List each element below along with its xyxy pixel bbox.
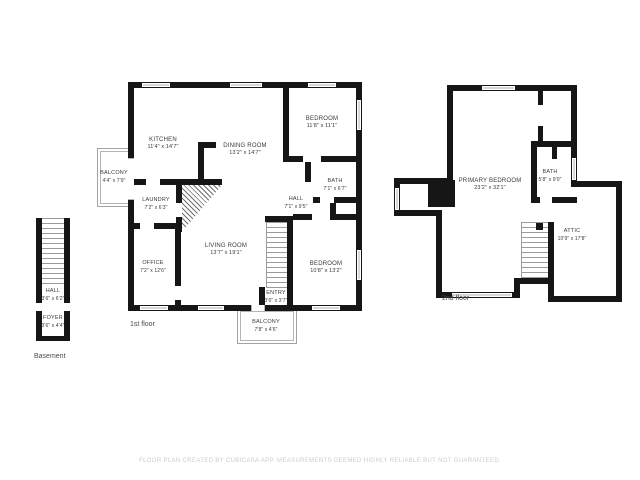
room-name: BATH (539, 169, 562, 177)
room-dims: 7'1" x 6'7" (324, 186, 347, 193)
room-dims: 13'7" x 19'1" (205, 250, 247, 258)
room-dims: 3'6" x 3'7" (265, 298, 288, 305)
room-dims: 7'2" x 6'3" (142, 205, 170, 212)
room-name: BATH (324, 178, 347, 186)
window-marker (395, 188, 399, 210)
window-marker (572, 158, 576, 180)
room-dims: 10'9" x 17'8" (558, 236, 587, 243)
wall (548, 296, 622, 302)
door-opening (540, 197, 552, 203)
room-label-bath-second: BATH 5'8" x 9'0" (539, 169, 562, 184)
room-name: LAUNDRY (142, 197, 170, 205)
room-label-balcony-bottom: BALCONY 7'8" x 4'6" (252, 319, 280, 334)
floor-label-first: 1st floor (130, 321, 155, 328)
room-name: ATTIC (558, 228, 587, 236)
room-label-bath-first: BATH 7'1" x 6'7" (324, 178, 347, 193)
wall (548, 222, 554, 302)
room-label-primary-bedroom: PRIMARY BEDROOM 23'2" x 32'1" (459, 177, 522, 193)
room-name: BALCONY (100, 170, 128, 178)
room-label-dining-room: DINING ROOM 13'2" x 14'7" (223, 142, 267, 158)
wall (447, 85, 453, 184)
room-dims: 4'4" x 7'9" (100, 178, 128, 185)
room-dims: 5'8" x 9'0" (539, 177, 562, 184)
wall (552, 147, 557, 159)
room-label-hall-first: HALL 7'1" x 9'5" (285, 196, 308, 211)
room-label-office: OFFICE 7'2" x 12'6" (140, 260, 166, 275)
room-label-bedroom-top: BEDROOM 11'8" x 11'1" (306, 115, 338, 131)
chimney (428, 180, 455, 207)
room-name: PRIMARY BEDROOM (459, 177, 522, 185)
room-dims: 11'4" x 14'7" (147, 144, 178, 152)
room-dims: 7'2" x 12'6" (140, 268, 166, 275)
room-name: KITCHEN (147, 136, 178, 144)
wall (571, 181, 622, 187)
room-dims: 3'6" x 6'2" (42, 296, 65, 303)
room-name: HALL (285, 196, 308, 204)
room-dims: 7'8" x 4'6" (252, 327, 280, 334)
room-name: BALCONY (252, 319, 280, 327)
disclaimer-text: FLOOR PLAN CREATED BY CUBICASA APP. MEAS… (0, 458, 640, 464)
wall (616, 184, 622, 302)
stair-landing-marker (536, 223, 543, 230)
wall (538, 91, 543, 105)
second-floor-staircase (521, 222, 550, 279)
room-label-basement-foyer: FOYER 3'6" x 4'4" (42, 315, 65, 330)
room-name: ENTRY (265, 290, 288, 298)
room-label-bedroom-bottom: BEDROOM 10'8" x 13'2" (310, 260, 342, 276)
room-dims: 10'8" x 13'2" (310, 268, 342, 276)
room-label-balcony-left: BALCONY 4'4" x 7'9" (100, 170, 128, 185)
wall (531, 197, 577, 203)
wall (394, 178, 453, 184)
room-label-living-room: LIVING ROOM 13'7" x 19'1" (205, 242, 247, 258)
floor-label-second: 2nd floor (442, 295, 469, 302)
room-name: BEDROOM (310, 260, 342, 268)
floor-label-basement: Basement (34, 353, 66, 360)
room-label-entry: ENTRY 3'6" x 3'7" (265, 290, 288, 305)
wall (531, 141, 537, 203)
window-marker (482, 86, 515, 90)
room-name: LIVING ROOM (205, 242, 247, 250)
room-name: OFFICE (140, 260, 166, 268)
wall (394, 210, 442, 216)
room-dims: 7'1" x 9'5" (285, 204, 308, 211)
room-label-basement-hall: HALL 3'6" x 6'2" (42, 288, 65, 303)
floor-plan-second-floor: PRIMARY BEDROOM 23'2" x 32'1" BATH 5'8" … (0, 0, 640, 480)
room-dims: 13'2" x 14'7" (223, 150, 267, 158)
room-name: BEDROOM (306, 115, 338, 123)
room-dims: 23'2" x 32'1" (459, 185, 522, 193)
room-label-attic: ATTIC 10'9" x 17'8" (558, 228, 587, 243)
room-label-laundry: LAUNDRY 7'2" x 6'3" (142, 197, 170, 212)
room-dims: 11'8" x 11'1" (306, 123, 338, 131)
room-dims: 3'6" x 4'4" (42, 323, 65, 330)
room-name: FOYER (42, 315, 65, 323)
room-name: DINING ROOM (223, 142, 267, 150)
room-name: HALL (42, 288, 65, 296)
room-label-kitchen: KITCHEN 11'4" x 14'7" (147, 136, 178, 152)
wall (436, 210, 442, 298)
